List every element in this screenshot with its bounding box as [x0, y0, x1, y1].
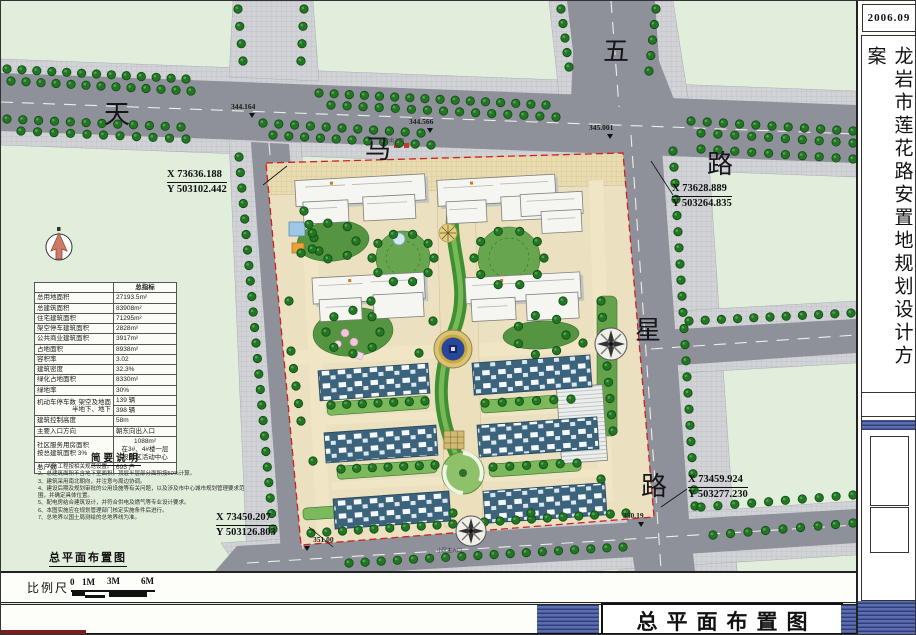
sidebar-frame: 龙岩市莲花路安置地规划设计方案 [861, 35, 916, 601]
checker-plaza [444, 431, 464, 449]
note-item: 4、建设后期及规划审批的公用设施等有关问题，以及涉及市中心城市规划管理要求范围，… [38, 486, 248, 501]
pool [289, 222, 305, 236]
scale-tick-0: 0 [70, 577, 75, 587]
title-bar-left [537, 605, 599, 634]
elevation-marker: 350.19 [623, 511, 644, 520]
commercial-entrance-label: 商业出入口 [379, 137, 404, 144]
scale-bar-segment [72, 592, 85, 596]
scale-tick-6m: 6M [141, 576, 154, 586]
swirl-plaza [442, 452, 484, 494]
road-name-wuxing-3: 路 [641, 466, 667, 503]
elevation-tick [607, 134, 613, 139]
main-entrance-label: 小区主入口 [437, 547, 462, 554]
elevation-marker: 344.164 [231, 102, 255, 111]
scale-strip: 比例尺 0 1M 3M 6M [1, 571, 856, 603]
coord-label-bottom-right: X 73459.924Y 503277.230 [688, 474, 748, 501]
title-bar-right [841, 605, 856, 634]
bottom-red-bar [1, 630, 86, 634]
date-text: 2006.09 [868, 12, 911, 24]
coord-label-top-left: X 73636.188Y 503102.442 [167, 169, 227, 196]
coord-label-top-right: X 73628.889Y 503264.835 [672, 183, 732, 210]
title-block-sidebar: 2006.09 龙岩市莲花路安置地规划设计方案 [856, 1, 916, 635]
scale-bar-segment [85, 595, 105, 598]
note-item: 2、总建筑面积不含地下室面积，顶层半层部分面积按50%计算。 [38, 471, 248, 478]
starburst-plaza [439, 224, 457, 242]
scale-label: 比例尺 [27, 579, 69, 596]
elevation-tick [638, 522, 644, 527]
note-item: 3、建筑采用南北朝向，并注意与周边协调。 [38, 479, 248, 486]
notes-list: 1、人防工程按相关规范设置。 2、总建筑面积不含地下室面积，顶层半层部分面积按5… [38, 464, 248, 522]
date-box: 2006.09 [862, 4, 916, 32]
title-strip: 总平面布置图 [1, 604, 856, 634]
central-plaza [434, 330, 472, 368]
note-item: 5、配电房结合建筑设计，并符合供电及燃气等专业设计要求。 [38, 500, 248, 507]
plan-label: 总平面布置图 [49, 549, 127, 567]
sidebar-box [870, 436, 909, 506]
scale-tick-1m: 1M [82, 577, 95, 587]
indicator-table: 总指标 总用地面积27193.5m² 总建筑面积83908m² 住宅建筑面积71… [34, 282, 177, 474]
project-title-vertical: 龙岩市莲花路安置地规划设计方案 [862, 46, 915, 386]
sheet-title-box: 总平面布置图 [601, 603, 843, 635]
elevation-marker: 344.566 [409, 117, 433, 126]
road-name-wuxing-2: 星 [635, 310, 661, 347]
elevation-marker: 351.00 [313, 535, 334, 544]
note-item: 7、总地界以国土局测绘的总地界线为准。 [38, 515, 248, 522]
sidebar-bottom-bar [858, 601, 916, 635]
scale-tick-3m: 3M [107, 576, 120, 586]
road-name-tianma-3: 路 [707, 144, 733, 181]
scale-bar-segment [109, 592, 147, 597]
road-name-tianma-2: 马 [365, 129, 391, 166]
elevation-tick [249, 113, 255, 118]
road-name-tianma-1: 天 [104, 94, 130, 131]
compass-rosette [456, 516, 486, 546]
compass-rosette [595, 328, 627, 360]
sidebar-blue-bar [862, 420, 915, 430]
elevation-tick [427, 128, 433, 133]
elevation-marker: 345.001 [589, 123, 613, 132]
road-name-wuxing-1: 五 [603, 31, 629, 68]
elevation-tick [304, 546, 310, 551]
sidebar-box [870, 507, 909, 553]
sheet-title: 总平面布置图 [628, 606, 817, 635]
drawing-sheet: X 73636.188Y 503102.442 X 73628.889Y 503… [0, 0, 916, 635]
note-item: 6、本图实施应在规划管理部门核定实施条件后进行。 [38, 508, 248, 515]
